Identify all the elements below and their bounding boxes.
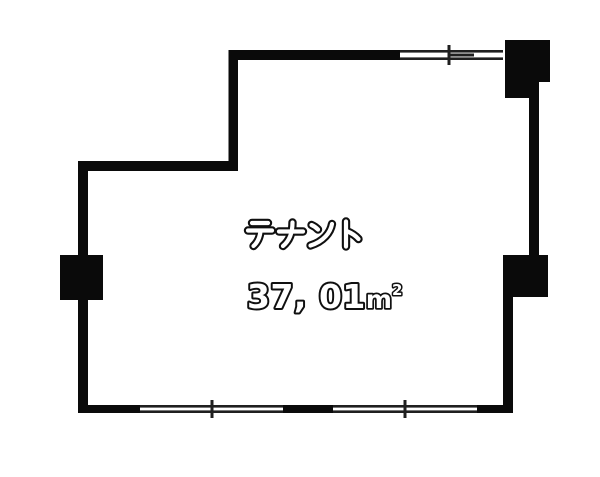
window-line-outer	[400, 50, 503, 53]
window-bottom-left	[140, 400, 283, 418]
wall-right-lower	[503, 297, 513, 413]
wall-step	[78, 161, 238, 171]
room-label	[248, 222, 359, 247]
kana-glyph-2	[279, 223, 303, 247]
pillar-left	[60, 255, 103, 300]
window-top	[400, 45, 503, 65]
room-area-unit-exponent: 2	[392, 281, 402, 299]
window-mullion-tick	[448, 45, 451, 65]
window-line-inner	[400, 57, 503, 60]
room-area-text: 37, 01m2	[247, 277, 402, 316]
wall-right-upper	[529, 93, 539, 255]
room-area-value: 37, 01	[247, 277, 366, 316]
kana-glyph-1	[248, 223, 272, 246]
walls-group	[78, 50, 539, 413]
wall-top	[229, 50, 400, 60]
pillar-bottom-right	[503, 255, 548, 297]
floorplan-canvas: 37, 01m2	[0, 0, 600, 477]
window-mullion-tick	[404, 400, 407, 418]
window-bottom-right	[333, 400, 477, 418]
room-area-unit-m: m	[366, 285, 392, 314]
window-sash	[450, 54, 474, 57]
kana-glyph-3	[311, 224, 333, 246]
window-mullion-tick	[211, 400, 214, 418]
kana-glyph-4	[346, 222, 359, 247]
wall-bottom-middle	[283, 405, 333, 413]
floorplan-drawing: 37, 01m2	[0, 0, 600, 477]
wall-upper-left	[229, 50, 239, 171]
pillar-top-right	[505, 40, 550, 98]
wall-bottom-left	[78, 405, 140, 413]
